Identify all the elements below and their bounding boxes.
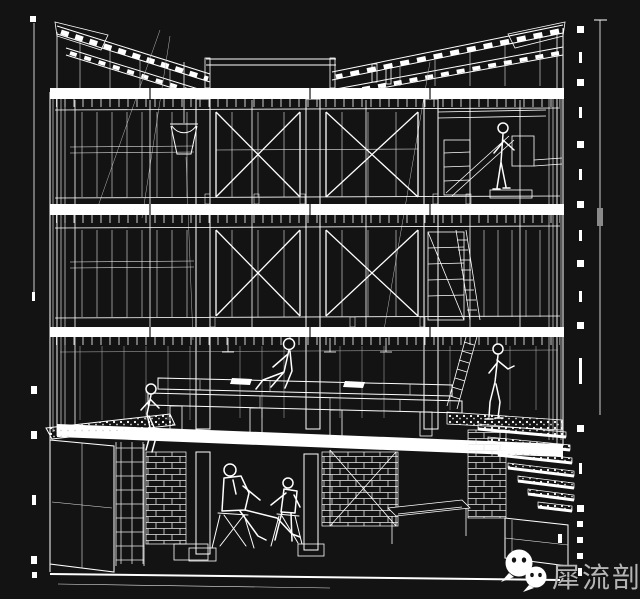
basement-bench — [388, 500, 470, 544]
watermark: 犀流剖报 — [501, 550, 640, 595]
middle-storey-windows-and-bracing — [55, 226, 560, 320]
survey-marks-right — [577, 26, 584, 576]
top-storey-windows-and-bracing — [55, 108, 562, 198]
architectural-section-page: 犀流剖报 — [0, 0, 640, 599]
architectural-section-drawing: 犀流剖报 — [0, 0, 640, 599]
stage-platform — [148, 378, 462, 436]
wechat-chat-bubbles-icon — [501, 550, 547, 593]
ladder-upper — [456, 230, 480, 320]
woman-standing-ground-right — [485, 344, 514, 419]
watermark-text: 犀流剖报 — [552, 561, 640, 594]
survey-marks-left — [30, 16, 37, 578]
butterfly-roof-framing — [55, 22, 565, 340]
brick-wall-left — [146, 452, 186, 544]
scale-ruler — [594, 20, 607, 415]
